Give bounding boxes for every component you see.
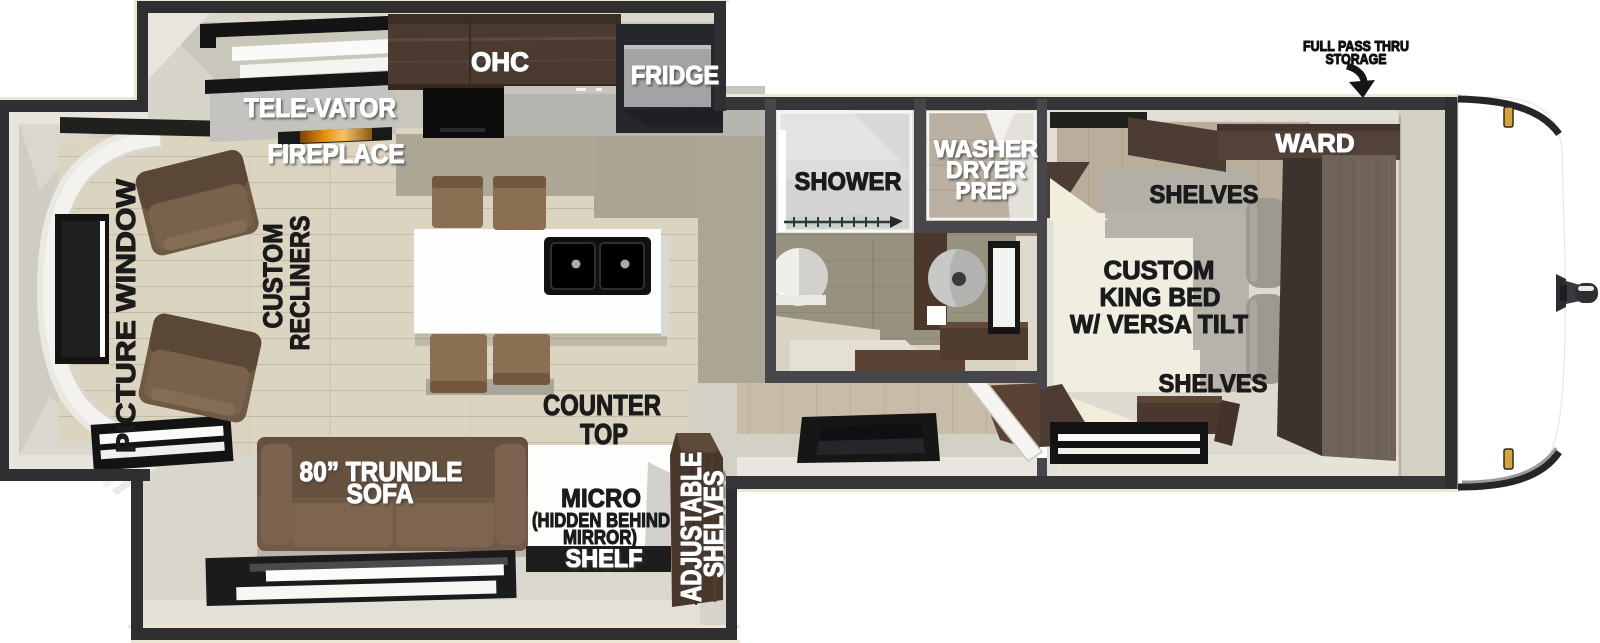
svg-text:KING BED: KING BED [1100, 282, 1221, 312]
svg-text:STORAGE: STORAGE [1326, 51, 1387, 68]
svg-text:COUNTER: COUNTER [543, 390, 661, 422]
svg-text:MICRO: MICRO [561, 483, 641, 513]
svg-text:FIREPLACE: FIREPLACE [268, 139, 405, 169]
svg-text:SHELVES: SHELVES [698, 471, 729, 578]
svg-text:SHELF: SHELF [566, 545, 643, 573]
svg-text:TELE-VATOR: TELE-VATOR [244, 93, 396, 123]
svg-text:RECLINERS: RECLINERS [285, 216, 315, 351]
svg-text:TOP: TOP [580, 419, 628, 451]
svg-text:FRIDGE: FRIDGE [631, 60, 719, 90]
svg-text:SOFA: SOFA [347, 478, 414, 509]
svg-text:W/ VERSA TILT: W/ VERSA TILT [1070, 309, 1248, 339]
svg-text:OHC: OHC [471, 47, 529, 77]
svg-text:PICTURE WINDOW: PICTURE WINDOW [111, 178, 141, 453]
svg-text:WARD: WARD [1276, 128, 1355, 158]
svg-text:SHOWER: SHOWER [795, 168, 902, 196]
svg-text:PREP: PREP [956, 178, 1017, 205]
svg-text:CUSTOM: CUSTOM [258, 224, 288, 329]
svg-text:SHELVES: SHELVES [1159, 370, 1268, 398]
svg-text:SHELVES: SHELVES [1150, 181, 1259, 209]
svg-text:CUSTOM: CUSTOM [1104, 255, 1215, 285]
